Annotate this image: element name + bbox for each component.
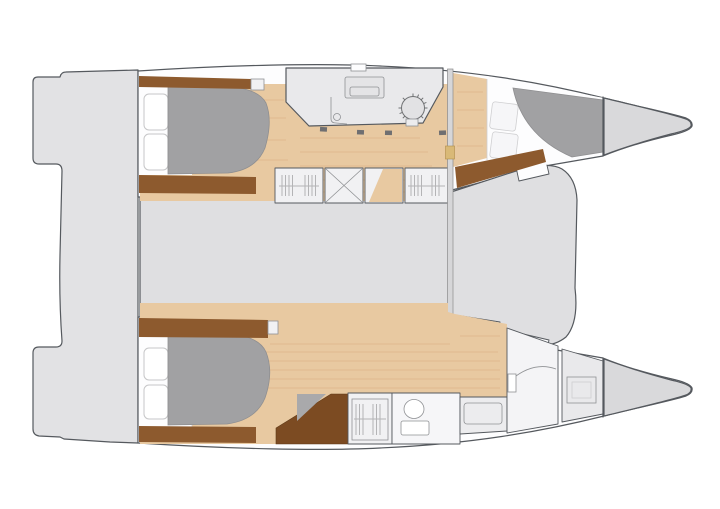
aft-deck [33, 70, 138, 443]
trim-hatch [268, 321, 278, 334]
wardrobe-trim-bottom [139, 175, 256, 194]
catamaran-floor-plan [0, 0, 720, 509]
starboard-bow-locker [604, 359, 691, 416]
toilet-tank [401, 421, 429, 435]
hull-window [144, 385, 168, 419]
wardrobe-trim-bottom [139, 426, 256, 443]
catamaran-floor-plan-page [0, 0, 720, 509]
beam-cap-top [446, 146, 455, 159]
port-bow-locker [604, 98, 691, 155]
bench-room [460, 397, 507, 434]
vanity-unit [508, 374, 516, 392]
bathroom [392, 393, 460, 444]
port-aft-double-berth [168, 86, 269, 174]
trim-hatch [251, 79, 264, 90]
hull-window [144, 134, 168, 170]
wardrobe-trim-top [139, 318, 268, 338]
deck-hatch [351, 64, 366, 71]
shower-room [562, 349, 603, 422]
storage-lockers-top-row [275, 168, 448, 203]
port-hull-floor-forward [453, 73, 487, 167]
stbd-aft-double-berth [168, 333, 270, 425]
hull-window [144, 94, 168, 130]
throttle-box [406, 119, 418, 126]
starboard-hull-interior [139, 303, 691, 444]
hull-window [144, 348, 168, 380]
toilet-bowl [404, 400, 424, 419]
